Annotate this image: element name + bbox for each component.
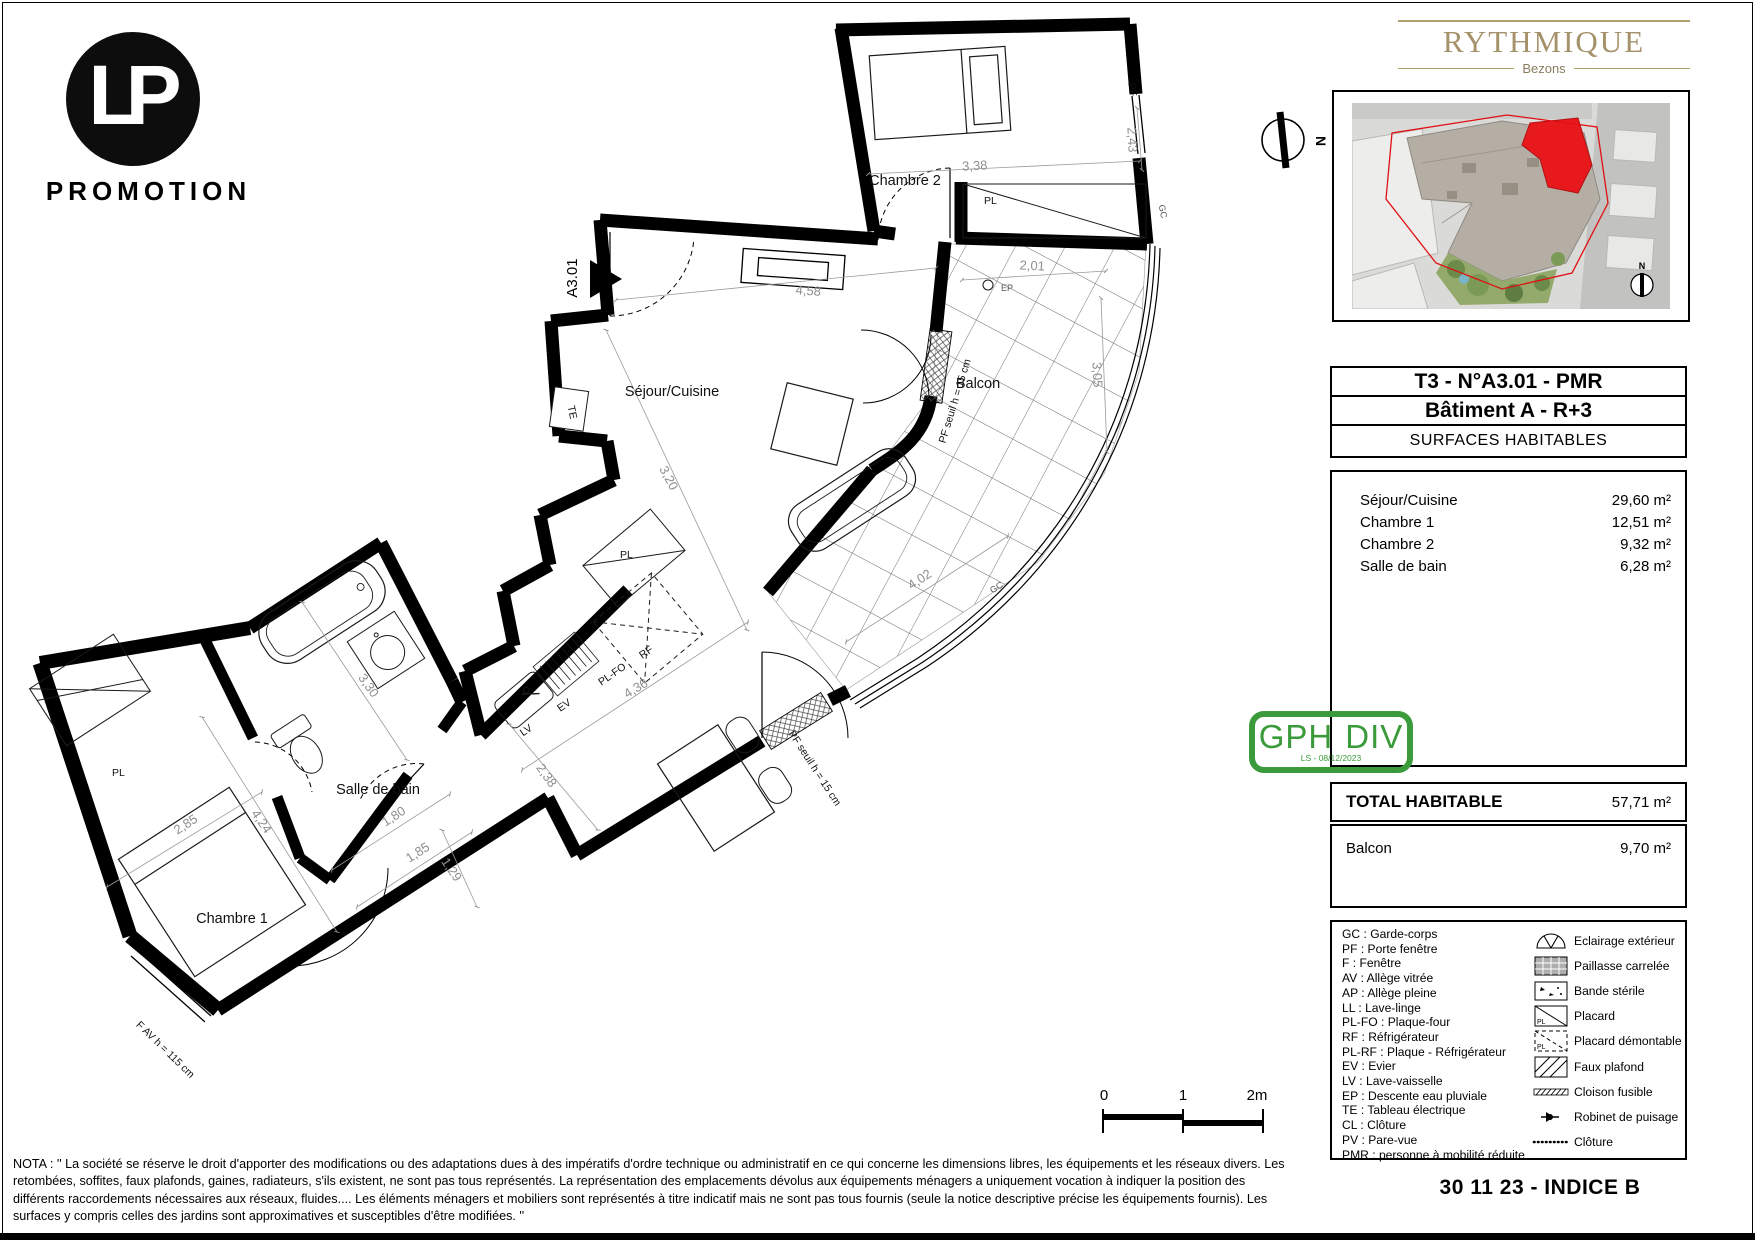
- building-title-box: Bâtiment A - R+3: [1330, 395, 1687, 426]
- compass-photo-north: N: [1639, 261, 1646, 271]
- table-row: Chambre 2 9,32 m²: [1332, 534, 1685, 556]
- cloison-fusible-icon: [1528, 1087, 1574, 1097]
- dim-338: 3,38: [962, 157, 988, 173]
- legend-abbr: EP : Descente eau pluviale: [1342, 1089, 1528, 1104]
- cloture-icon: [1528, 1138, 1574, 1146]
- fridge-oven-zone: [593, 573, 703, 683]
- list-item: Faux plafond: [1528, 1054, 1685, 1079]
- legend-abbr: LL : Lave-linge: [1342, 1001, 1528, 1016]
- table-row: Chambre 1 12,51 m²: [1332, 512, 1685, 534]
- program-brand: RYTHMIQUE Bezons: [1398, 20, 1690, 76]
- tag-ep: EP: [1001, 283, 1013, 293]
- scale-1: 1: [1179, 1087, 1187, 1104]
- dim-424: 4,24: [248, 807, 275, 836]
- total-value: 57,71 m²: [1612, 794, 1671, 811]
- surface-value: 12,51 m²: [1612, 512, 1671, 534]
- legend-abbr: PL-FO : Plaque-four: [1342, 1015, 1528, 1030]
- legend-symbols: Eclairage extérieur Paillasse carrelée B…: [1528, 922, 1685, 1158]
- room-label-sdb: Salle de bain: [336, 782, 420, 798]
- dim-330: 3,30: [355, 671, 382, 700]
- brand-dash-left: [1398, 68, 1514, 69]
- legend-abbr: LV : Lave-vaisselle: [1342, 1074, 1528, 1089]
- legend-abbr: PV : Pare-vue: [1342, 1133, 1528, 1148]
- surfaces-header-box: SURFACES HABITABLES: [1330, 424, 1687, 458]
- building-title: Bâtiment A - R+3: [1425, 399, 1592, 423]
- tag-pf-window: PF: [1125, 82, 1139, 97]
- legend-abbr: AP : Allège pleine: [1342, 986, 1528, 1001]
- bed-chambre2: [869, 46, 1011, 139]
- list-item: Eclairage extérieur: [1528, 928, 1685, 953]
- total-label: TOTAL HABITABLE: [1346, 792, 1502, 812]
- legend-abbreviations: GC : Garde-corps PF : Porte fenêtre F : …: [1332, 922, 1528, 1158]
- scale-bar-graphic: [1102, 1109, 1264, 1133]
- stamp-right: DIV: [1345, 722, 1403, 752]
- tag-pl-sejour: PL: [620, 549, 633, 561]
- unit-number-label: A3.01: [564, 258, 581, 297]
- program-city: Bezons: [1522, 61, 1565, 76]
- dim-243: 2,43: [1124, 127, 1140, 153]
- legend-abbr: PF : Porte fenêtre: [1342, 942, 1528, 957]
- compass-north-label: N: [1313, 136, 1329, 146]
- placard-demontable-icon: PL: [1528, 1030, 1574, 1052]
- tag-rf: RF: [637, 644, 655, 662]
- balcony-value: 9,70 m²: [1620, 840, 1671, 857]
- brand-rule-top: [1398, 20, 1690, 22]
- compass-plan: N: [1262, 112, 1329, 168]
- tag-pf-seuil-2: PF seuil h = 15 cm: [786, 729, 844, 809]
- toilet: [270, 714, 334, 783]
- legend-abbr: TE : Tableau électrique: [1342, 1103, 1528, 1118]
- list-item: Robinet de puisage: [1528, 1104, 1685, 1129]
- room-label-chambre2: Chambre 2: [869, 173, 941, 189]
- dim-185: 1,85: [403, 839, 432, 865]
- room-label-sejour: Séjour/Cuisine: [625, 384, 719, 400]
- robinet-de-puisage-icon: [1528, 1111, 1574, 1123]
- dim-238: 2,38: [533, 761, 560, 790]
- stamp-text: GPH DIV: [1259, 722, 1404, 752]
- total-box: TOTAL HABITABLE 57,71 m²: [1330, 782, 1687, 822]
- paillasse-carrelee-icon: [1528, 956, 1574, 976]
- svg-text:PL: PL: [1537, 1044, 1546, 1051]
- surface-value: 9,32 m²: [1620, 534, 1671, 556]
- surface-label: Salle de bain: [1360, 556, 1447, 578]
- nota-disclaimer: NOTA : '' La société se réserve le droit…: [13, 1156, 1173, 1225]
- tag-plfo: PL-FO: [596, 661, 628, 689]
- unit-title: T3 - N°A3.01 - PMR: [1414, 370, 1602, 394]
- legend-abbr: GC : Garde-corps: [1342, 927, 1528, 942]
- program-city-row: Bezons: [1398, 61, 1690, 76]
- floorplan-sheet: { "branding": { "lp_monogram": "LP", "lp…: [0, 0, 1755, 1241]
- sheet-bottom-rule: [0, 1233, 1755, 1240]
- scale-0: 0: [1100, 1087, 1108, 1104]
- bathtub: [250, 551, 395, 672]
- faux-plafond-icon: [1528, 1056, 1574, 1078]
- eclairage-exterieur-icon: [1528, 932, 1574, 950]
- list-item: Cloison fusible: [1528, 1079, 1685, 1104]
- legend-abbr: RF : Réfrigérateur: [1342, 1030, 1528, 1045]
- lp-promotion-label: PROMOTION: [36, 176, 261, 207]
- dim-285: 2,85: [171, 811, 200, 837]
- svg-text:PL: PL: [1537, 1019, 1546, 1026]
- scale-bar-labels: 0 1 2m: [1102, 1087, 1264, 1105]
- surface-label: Séjour/Cuisine: [1360, 490, 1458, 512]
- surface-label: Chambre 2: [1360, 534, 1434, 556]
- surfaces-header: SURFACES HABITABLES: [1410, 432, 1608, 450]
- date-index: 30 11 23 - INDICE B: [1390, 1176, 1690, 1200]
- legend-abbr: EV : Evier: [1342, 1059, 1528, 1074]
- rainwater-pipe: [983, 280, 993, 290]
- balcony-label: Balcon: [1346, 840, 1392, 857]
- stamp-left: GPH: [1259, 722, 1334, 752]
- nota-line: retombées, soffites, faux plafonds, gain…: [13, 1173, 1173, 1190]
- list-item: Bande stérile: [1528, 978, 1685, 1003]
- site-photo-box: N: [1332, 90, 1690, 322]
- legend-box: GC : Garde-corps PF : Porte fenêtre F : …: [1330, 920, 1687, 1160]
- legend-abbr: F : Fenêtre: [1342, 956, 1528, 971]
- list-item: PL Placard: [1528, 1004, 1685, 1029]
- lp-promotion-logo: LP PROMOTION: [30, 16, 260, 216]
- nota-line: différents raccordements nécessaires aux…: [13, 1191, 1173, 1208]
- validation-stamp: GPH DIV LS - 08/12/2023: [1249, 711, 1413, 773]
- tag-pl-chambre1: PL: [112, 767, 125, 779]
- nota-line: NOTA : '' La société se réserve le droit…: [13, 1156, 1173, 1173]
- tag-pl-chambre2: PL: [984, 195, 997, 207]
- surface-label: Chambre 1: [1360, 512, 1434, 534]
- scale-2m: 2m: [1247, 1087, 1268, 1104]
- bande-sterile-icon: [1528, 981, 1574, 1001]
- tag-f-av: F AV h = 115 cm: [133, 1019, 196, 1081]
- balcony-area: [768, 244, 1160, 708]
- list-item: Clôture: [1528, 1130, 1685, 1155]
- side-table: [771, 383, 853, 465]
- table-row: Séjour/Cuisine 29,60 m²: [1332, 490, 1685, 512]
- nota-line: surfaces y compris celles des jardins so…: [13, 1208, 1173, 1225]
- brand-dash-right: [1574, 68, 1690, 69]
- tag-ev: EV: [555, 697, 573, 715]
- lp-monogram: LP: [88, 47, 167, 144]
- surface-value: 29,60 m²: [1612, 490, 1671, 512]
- legend-abbr: PMR : personne à mobilité réduite: [1342, 1148, 1528, 1163]
- legend-abbr: CL : Clôture: [1342, 1118, 1528, 1133]
- unit-title-box: T3 - N°A3.01 - PMR: [1330, 366, 1687, 397]
- dim-458: 4,58: [795, 282, 821, 299]
- dim-436: 4,36: [621, 675, 650, 701]
- list-item: PL Placard démontable: [1528, 1029, 1685, 1054]
- lp-logo-circle: LP: [66, 32, 200, 166]
- surface-value: 6,28 m²: [1620, 556, 1671, 578]
- entrance-marker: A3.01: [564, 258, 622, 298]
- list-item: Paillasse carrelée: [1528, 953, 1685, 978]
- dim-320: 3,20: [656, 463, 681, 492]
- tag-gc-top: GC: [1157, 204, 1170, 220]
- scale-bar: 0 1 2m: [1102, 1087, 1264, 1139]
- dim-201: 2,01: [1019, 257, 1045, 273]
- stamp-date: LS - 08/12/2023: [1301, 753, 1362, 763]
- table-row: Salle de bain 6,28 m²: [1332, 556, 1685, 578]
- dim-305: 3,05: [1089, 362, 1105, 388]
- closet-chambre2: [963, 184, 1146, 238]
- balcony-box: Balcon 9,70 m²: [1330, 824, 1687, 908]
- room-label-chambre1: Chambre 1: [196, 911, 268, 927]
- placard-icon: PL: [1528, 1005, 1574, 1027]
- program-name: RYTHMIQUE: [1398, 24, 1690, 60]
- dishwasher-drainer: [533, 632, 599, 696]
- legend-abbr: PL-RF : Plaque - Réfrigérateur: [1342, 1045, 1528, 1060]
- aerial-photo: N: [1352, 103, 1670, 309]
- closet-sejour: [583, 509, 685, 607]
- legend-abbr: AV : Allège vitrée: [1342, 971, 1528, 986]
